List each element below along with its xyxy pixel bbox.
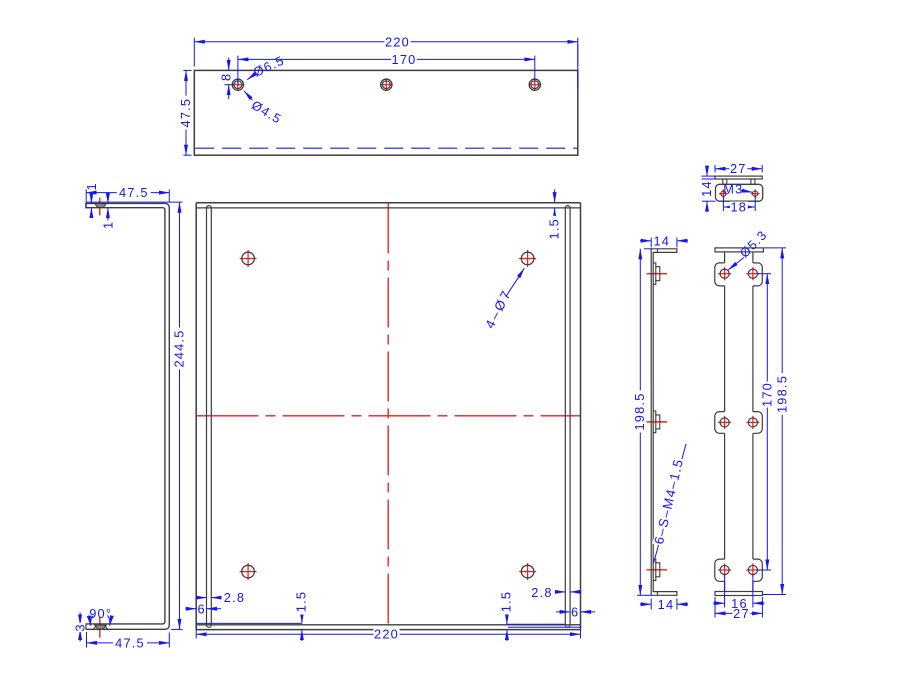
svg-text:6: 6	[571, 605, 579, 620]
svg-text:14: 14	[699, 180, 714, 197]
svg-text:244.5: 244.5	[171, 329, 186, 367]
svg-text:14: 14	[653, 233, 670, 248]
svg-text:170: 170	[392, 52, 417, 67]
svg-text:1.5: 1.5	[294, 591, 309, 612]
svg-text:2.8: 2.8	[224, 590, 245, 605]
svg-text:170: 170	[759, 382, 774, 407]
svg-text:1: 1	[84, 182, 99, 190]
svg-text:3: 3	[73, 623, 88, 631]
svg-text:27: 27	[733, 606, 750, 621]
svg-text:47.5: 47.5	[115, 636, 145, 651]
svg-text:18: 18	[730, 200, 747, 215]
svg-text:220: 220	[374, 627, 399, 642]
svg-text:M3: M3	[723, 181, 743, 196]
svg-text:27: 27	[730, 161, 747, 176]
svg-text:47.5: 47.5	[119, 185, 149, 200]
svg-text:220: 220	[385, 34, 410, 49]
svg-text:8: 8	[219, 73, 234, 81]
svg-text:1.5: 1.5	[546, 218, 561, 239]
svg-text:14: 14	[658, 597, 675, 612]
svg-text:6: 6	[198, 601, 206, 616]
svg-text:1.5: 1.5	[499, 591, 514, 612]
svg-text:2.8: 2.8	[531, 585, 552, 600]
svg-text:198.5: 198.5	[632, 392, 647, 430]
svg-text:90°: 90°	[89, 606, 112, 621]
svg-text:47.5: 47.5	[178, 98, 193, 128]
svg-text:198.5: 198.5	[774, 375, 789, 413]
svg-text:1: 1	[100, 221, 115, 229]
